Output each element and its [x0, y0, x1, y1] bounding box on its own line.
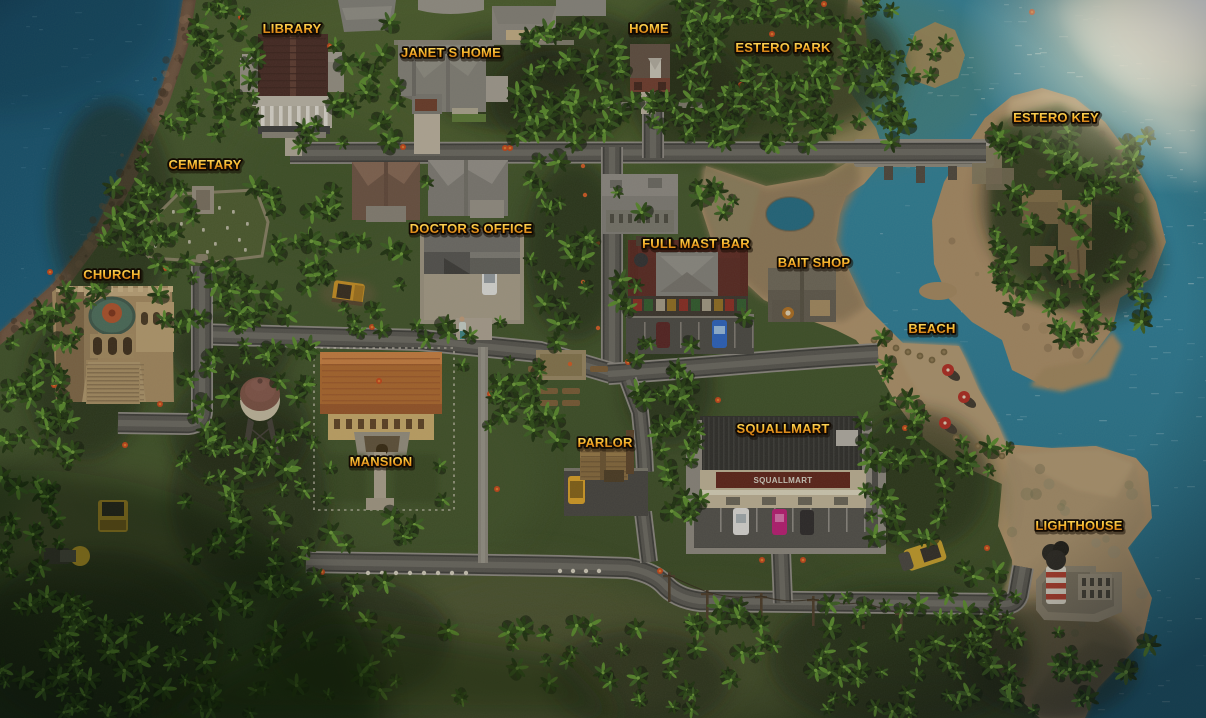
svg-text:ESTERO PARK: ESTERO PARK	[735, 40, 831, 55]
svg-text:LIGHTHOUSE: LIGHTHOUSE	[1035, 518, 1122, 533]
svg-text:JANET S HOME: JANET S HOME	[401, 45, 501, 60]
svg-text:FULL MAST BAR: FULL MAST BAR	[642, 236, 750, 251]
svg-text:BEACH: BEACH	[908, 321, 955, 336]
svg-text:PARLOR: PARLOR	[577, 435, 633, 450]
svg-text:LIBRARY: LIBRARY	[263, 21, 322, 36]
svg-text:MANSION: MANSION	[350, 454, 413, 469]
svg-text:ESTERO KEY: ESTERO KEY	[1013, 110, 1099, 125]
svg-text:DOCTOR S OFFICE: DOCTOR S OFFICE	[410, 221, 533, 236]
svg-text:CHURCH: CHURCH	[83, 267, 141, 282]
svg-text:CEMETARY: CEMETARY	[168, 157, 241, 172]
svg-text:SQUALLMART: SQUALLMART	[737, 421, 830, 436]
svg-text:BAIT SHOP: BAIT SHOP	[778, 255, 851, 270]
svg-text:HOME: HOME	[629, 21, 669, 36]
